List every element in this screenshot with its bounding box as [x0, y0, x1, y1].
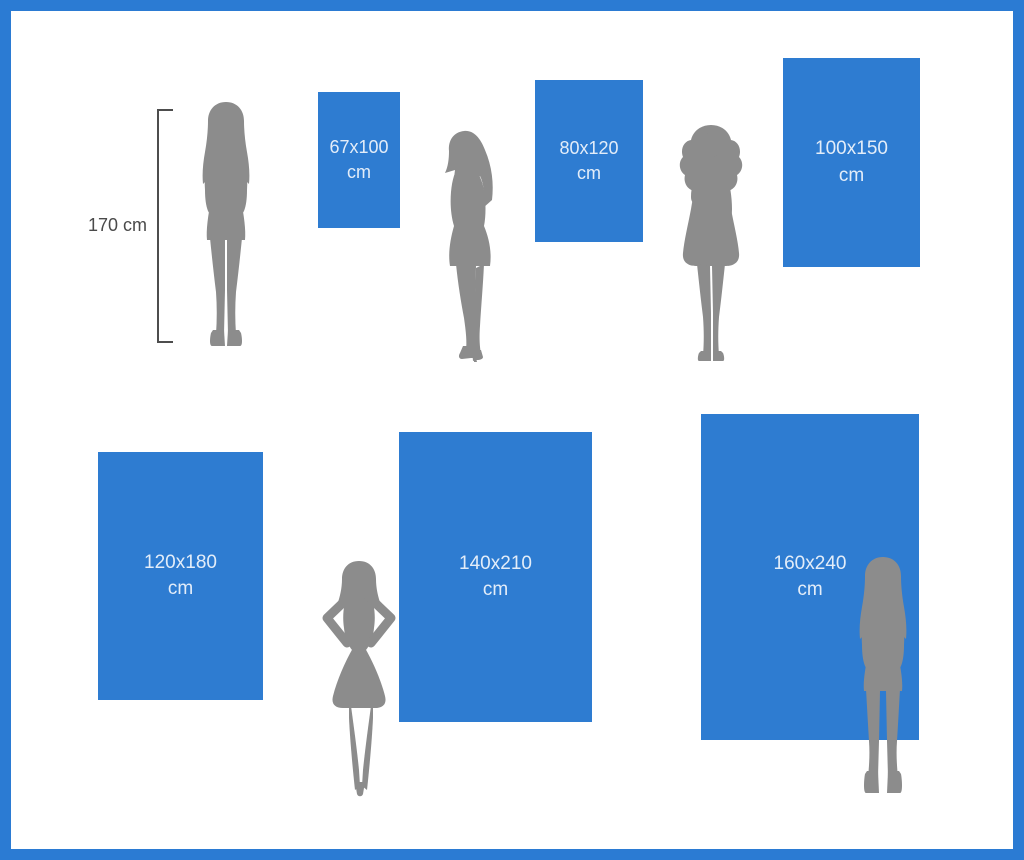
- size-label-unit: cm: [347, 160, 371, 185]
- size-label-dimensions: 80x120: [559, 136, 618, 161]
- size-label-dimensions: 67x100: [329, 135, 388, 160]
- size-rect-67x100: 67x100 cm: [318, 92, 400, 228]
- size-label-unit: cm: [483, 577, 508, 603]
- size-rect-120x180: 120x180 cm: [98, 452, 263, 700]
- woman-curly-hair-silhouette-icon: [663, 123, 759, 363]
- size-label-unit: cm: [797, 577, 822, 603]
- size-rect-80x120: 80x120 cm: [535, 80, 643, 242]
- woman-standing-boots-silhouette-icon: [838, 555, 928, 795]
- woman-standing-front-silhouette-icon: [183, 100, 269, 348]
- size-comparison-diagram: 170 cm 67x100 cm 80x120 cm: [0, 0, 1024, 860]
- size-rect-100x150: 100x150 cm: [783, 58, 920, 267]
- size-label-dimensions: 160x240: [774, 551, 847, 577]
- woman-hands-on-hips-silhouette-icon: [303, 560, 415, 798]
- size-label-unit: cm: [168, 576, 193, 602]
- size-label-dimensions: 120x180: [144, 550, 217, 576]
- size-label-unit: cm: [839, 163, 864, 189]
- size-label-dimensions: 140x210: [459, 551, 532, 577]
- size-label-dimensions: 100x150: [815, 136, 888, 162]
- height-measure-label: 170 cm: [81, 215, 147, 236]
- height-measure-bracket: [157, 109, 173, 343]
- size-rect-140x210: 140x210 cm: [399, 432, 592, 722]
- size-label-unit: cm: [577, 161, 601, 186]
- woman-profile-silhouette-icon: [428, 128, 516, 362]
